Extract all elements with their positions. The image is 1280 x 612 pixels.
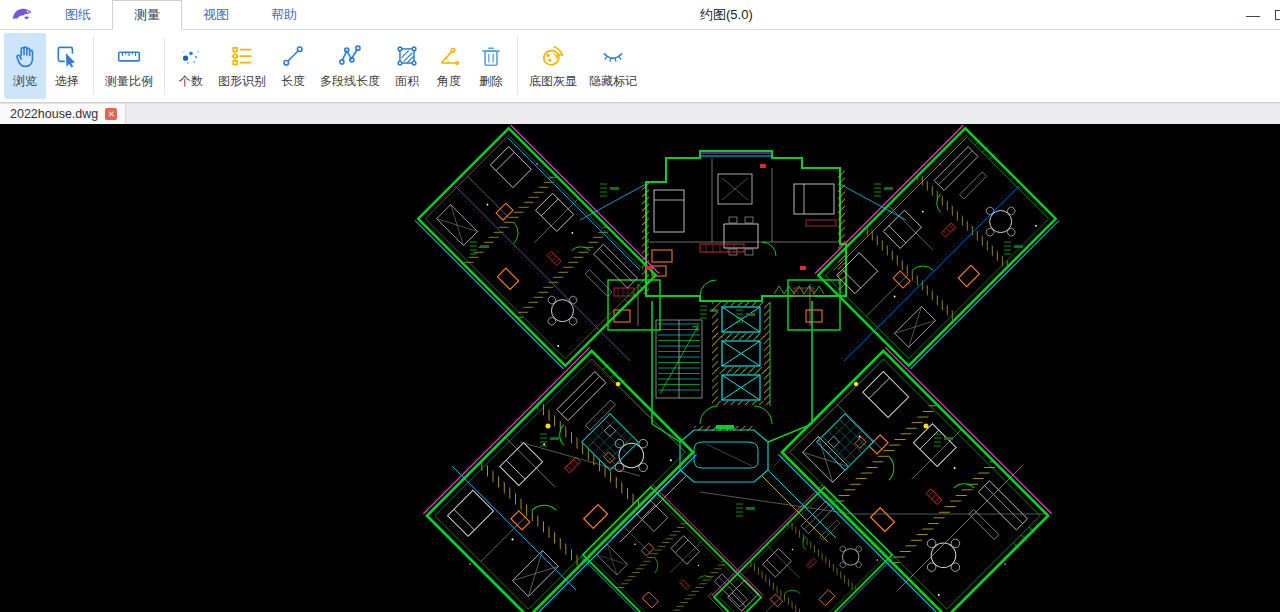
tool-label: 多段线长度 (320, 73, 380, 90)
angle-icon (436, 43, 462, 69)
tool-angle[interactable]: 角度 (428, 33, 470, 99)
tool-label: 面积 (395, 73, 419, 90)
drawing-canvas[interactable] (0, 124, 1280, 612)
tab-close-icon[interactable]: ✕ (105, 108, 117, 120)
tool-label: 底图灰显 (529, 73, 577, 90)
toolbar-separator (517, 37, 518, 95)
tool-count[interactable]: 个数 (170, 33, 212, 99)
window-controls: — (1233, 0, 1280, 30)
shape-recognition-icon (229, 43, 255, 69)
tool-label: 个数 (179, 73, 203, 90)
tool-label: 图形识别 (218, 73, 266, 90)
tool-label: 测量比例 (105, 73, 153, 90)
tool-polyline-length[interactable]: 多段线长度 (314, 33, 386, 99)
tool-browse[interactable]: 浏览 (4, 33, 46, 99)
minimize-button[interactable]: — (1233, 0, 1273, 30)
floor-plan-drawing (0, 124, 1280, 612)
document-tab-bar: 2022house.dwg ✕ (0, 103, 1280, 124)
tool-gray-background[interactable]: 底图灰显 (523, 33, 583, 99)
menu-tab-view[interactable]: 视图 (182, 0, 250, 29)
tool-measure-scale[interactable]: 测量比例 (99, 33, 159, 99)
tool-label: 角度 (437, 73, 461, 90)
count-dots-icon (178, 43, 204, 69)
tool-label: 删除 (479, 73, 503, 90)
document-tab-label: 2022house.dwg (10, 107, 98, 121)
menu-tab-drawing[interactable]: 图纸 (44, 0, 112, 29)
toolbar-separator (164, 37, 165, 95)
document-tab[interactable]: 2022house.dwg ✕ (0, 104, 126, 124)
tool-length[interactable]: 长度 (272, 33, 314, 99)
tool-select[interactable]: 选择 (46, 33, 88, 99)
menu-tab-measure[interactable]: 测量 (112, 0, 182, 30)
tool-label: 长度 (281, 73, 305, 90)
tool-label: 隐藏标记 (589, 73, 637, 90)
polyline-length-icon (337, 43, 363, 69)
closed-eye-icon (600, 43, 626, 69)
elevator-shafts (712, 302, 770, 405)
length-icon (280, 43, 306, 69)
area-icon (394, 43, 420, 69)
tool-shape-recognition[interactable]: 图形识别 (212, 33, 272, 99)
palette-icon (540, 43, 566, 69)
maximize-icon (1275, 10, 1280, 20)
maximize-button[interactable] (1273, 0, 1280, 30)
tool-hide-marks[interactable]: 隐藏标记 (583, 33, 643, 99)
tool-label: 选择 (55, 73, 79, 90)
tool-area[interactable]: 面积 (386, 33, 428, 99)
title-bar: 图纸 测量 视图 帮助 约图(5.0) — (0, 0, 1280, 30)
ribbon-toolbar: 浏览 选择 测量比例 个数 (0, 30, 1280, 103)
menu-tab-help[interactable]: 帮助 (250, 0, 318, 29)
window-title: 约图(5.0) (700, 0, 753, 30)
toolbar-separator (93, 37, 94, 95)
app-logo[interactable] (0, 0, 44, 29)
leopard-logo-icon (10, 5, 34, 25)
hand-icon (12, 43, 38, 69)
tool-label: 浏览 (13, 73, 37, 90)
select-icon (54, 43, 80, 69)
trash-icon (478, 43, 504, 69)
ruler-icon (116, 43, 142, 69)
tool-delete[interactable]: 删除 (470, 33, 512, 99)
